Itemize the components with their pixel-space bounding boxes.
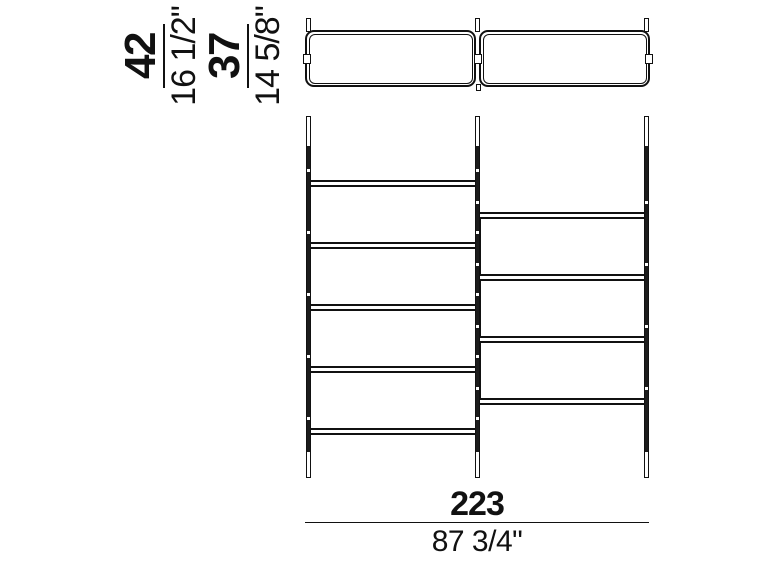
post-center-joint-7 — [476, 355, 479, 358]
shelf-left-5 — [310, 428, 475, 435]
post-left-joint-2 — [307, 231, 310, 234]
post-left-joint-5 — [307, 417, 310, 420]
post-left-joint-4 — [307, 355, 310, 358]
post-center-joint-5 — [476, 293, 479, 296]
shelf-left-4 — [310, 366, 475, 373]
compartment-left-4 — [310, 373, 476, 428]
compartment-left-3 — [310, 311, 476, 366]
shelf-left-2 — [310, 242, 475, 249]
post-center-joint-4 — [476, 263, 479, 266]
shelf-right-2 — [480, 274, 644, 281]
post-left-body — [307, 146, 310, 452]
post-left — [306, 116, 311, 478]
shelf-left-3 — [310, 304, 475, 311]
post-right — [644, 116, 649, 478]
post-center-joint-2 — [476, 201, 479, 204]
post-right-joint-1 — [645, 201, 648, 204]
post-center-body — [476, 146, 479, 452]
post-right-joint-2 — [645, 263, 648, 266]
post-center — [475, 116, 480, 478]
compartment-left-2 — [310, 249, 476, 304]
width-dimension-line — [305, 522, 649, 523]
post-center-joint-8 — [476, 387, 479, 390]
technical-drawing: 42 16 1/2" 37 14 5/8" 223 87 3/4" — [0, 0, 773, 580]
post-right-body — [645, 146, 648, 452]
post-center-joint-6 — [476, 325, 479, 328]
post-right-joint-3 — [645, 325, 648, 328]
post-center-joint-3 — [476, 231, 479, 234]
compartment-right-2 — [480, 281, 645, 336]
shelf-left-1 — [310, 180, 475, 187]
post-center-joint-9 — [476, 417, 479, 420]
width-dimension-inches: 87 3/4" — [305, 526, 649, 557]
compartment-right-3 — [480, 343, 645, 398]
post-right-joint-4 — [645, 387, 648, 390]
post-left-joint-3 — [307, 293, 310, 296]
width-dimension-cm: 223 — [305, 487, 649, 521]
post-left-joint-1 — [307, 169, 310, 172]
shelf-right-3 — [480, 336, 644, 343]
shelf-right-1 — [480, 212, 644, 219]
compartment-right-1 — [480, 219, 645, 274]
compartment-left-1 — [310, 187, 476, 242]
post-center-joint-1 — [476, 169, 479, 172]
shelf-right-4 — [480, 398, 644, 405]
